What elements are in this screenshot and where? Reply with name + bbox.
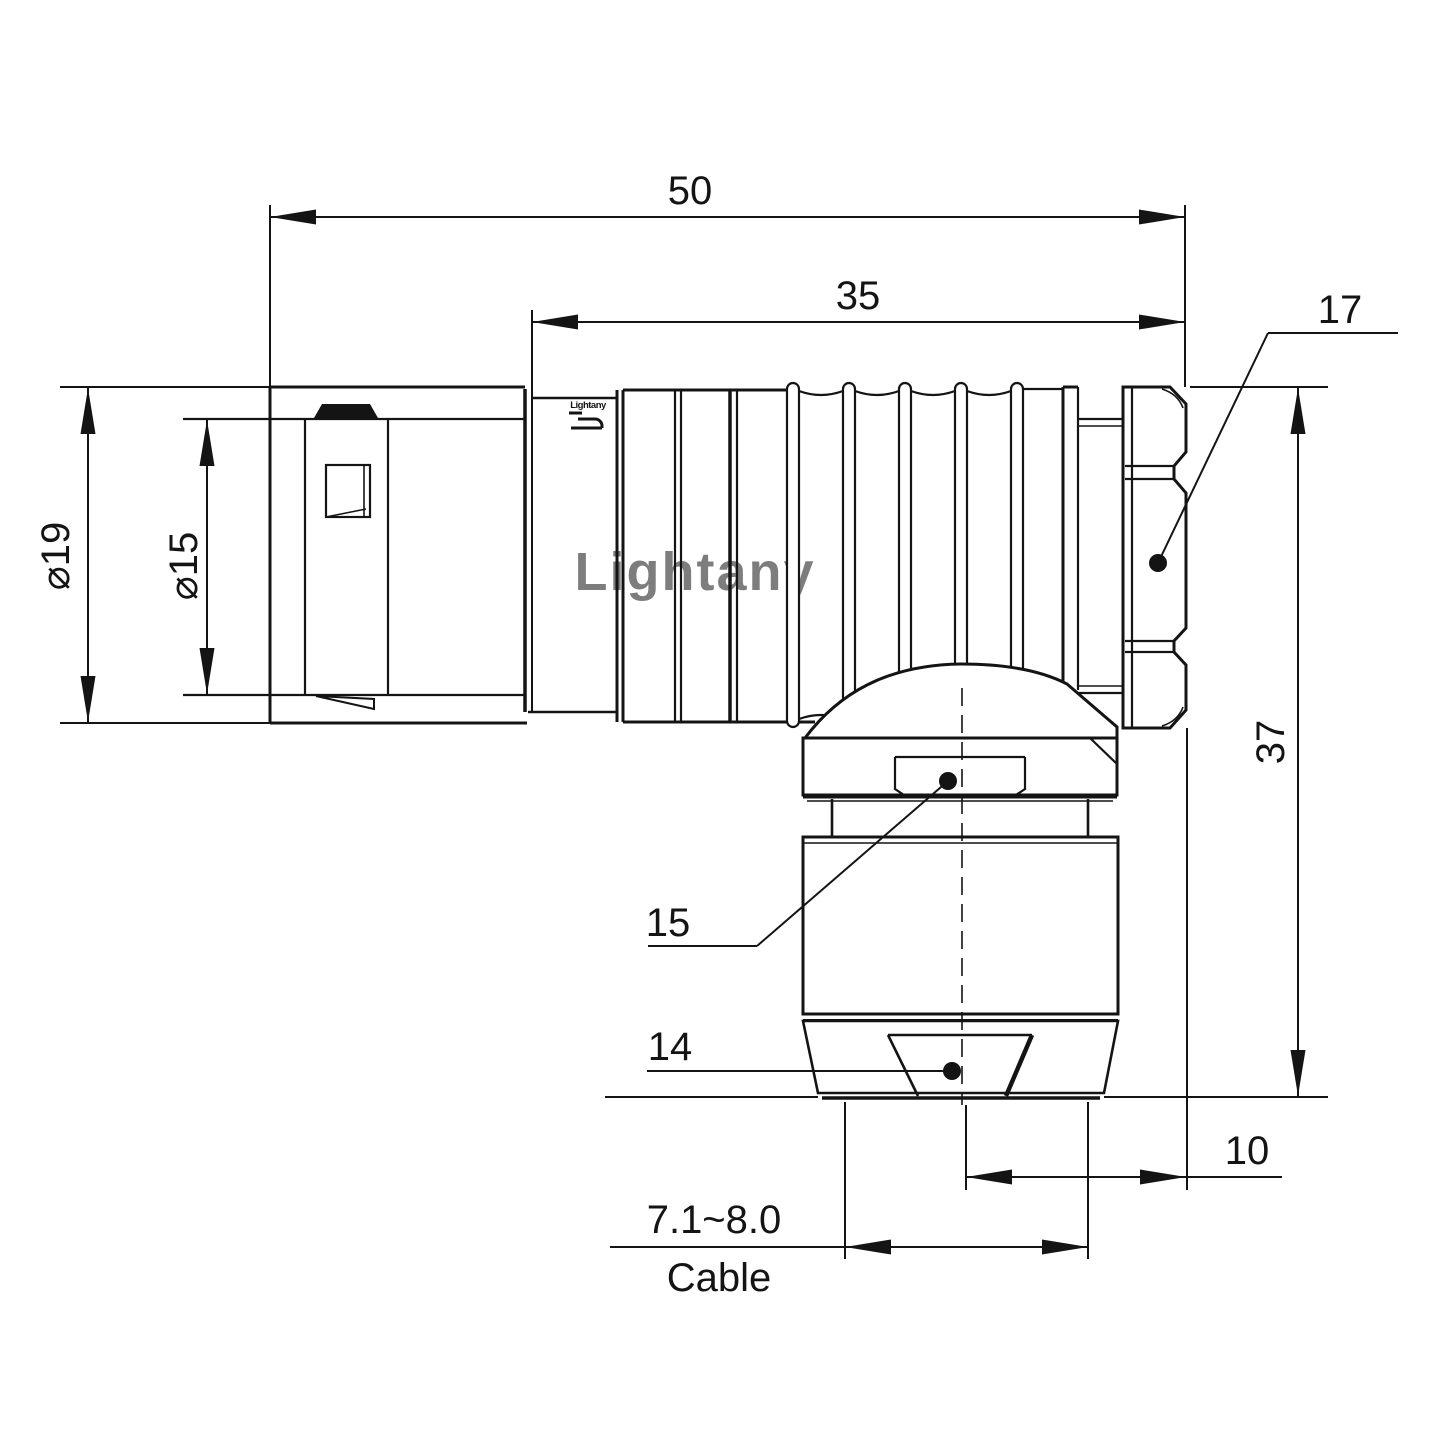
dim-10-label: 10 [1225, 1129, 1270, 1173]
rear-band [1063, 387, 1078, 690]
dim-dia15-label: ⌀15 [162, 532, 206, 601]
neck [1078, 419, 1123, 693]
latch-tab [314, 404, 378, 418]
part-marking-text: Lightany [570, 400, 607, 411]
dim-15-label: 15 [646, 901, 691, 945]
key-window [326, 465, 370, 517]
dim-cable-range-label: 7.1~8.0 [647, 1198, 782, 1242]
dimension-cable-range: 7.1~8.0 Cable [610, 1102, 1088, 1300]
connector-side-view: Lightany [183, 310, 1186, 1105]
dimension-overall-length: 50 [270, 169, 1185, 387]
dim-17-label: 17 [1318, 288, 1363, 332]
front-shell [183, 310, 532, 723]
watermark-text: Lightany [575, 542, 816, 602]
dim-35-label: 35 [836, 274, 881, 318]
dimension-inner-diameter: ⌀15 [162, 419, 215, 695]
collet-cone [803, 1021, 1118, 1098]
dimension-shell-length: 35 [532, 274, 1185, 330]
leader-dot [939, 772, 957, 790]
dim-50-label: 50 [668, 169, 713, 213]
dim-14-label: 14 [648, 1025, 693, 1069]
dimension-outer-diameter: ⌀19 [34, 387, 270, 723]
leader-dot [1149, 554, 1167, 572]
elbow-body [803, 664, 1118, 1105]
technical-drawing-canvas: Lightany [0, 0, 1440, 1440]
bottom-latch [316, 696, 374, 709]
dim-37-label: 37 [1249, 720, 1293, 765]
cable-caption: Cable [667, 1256, 772, 1300]
cable-collar [803, 738, 1117, 801]
gland-neck [832, 799, 1088, 837]
leader-dot [943, 1062, 961, 1080]
dim-dia19-label: ⌀19 [34, 522, 78, 591]
